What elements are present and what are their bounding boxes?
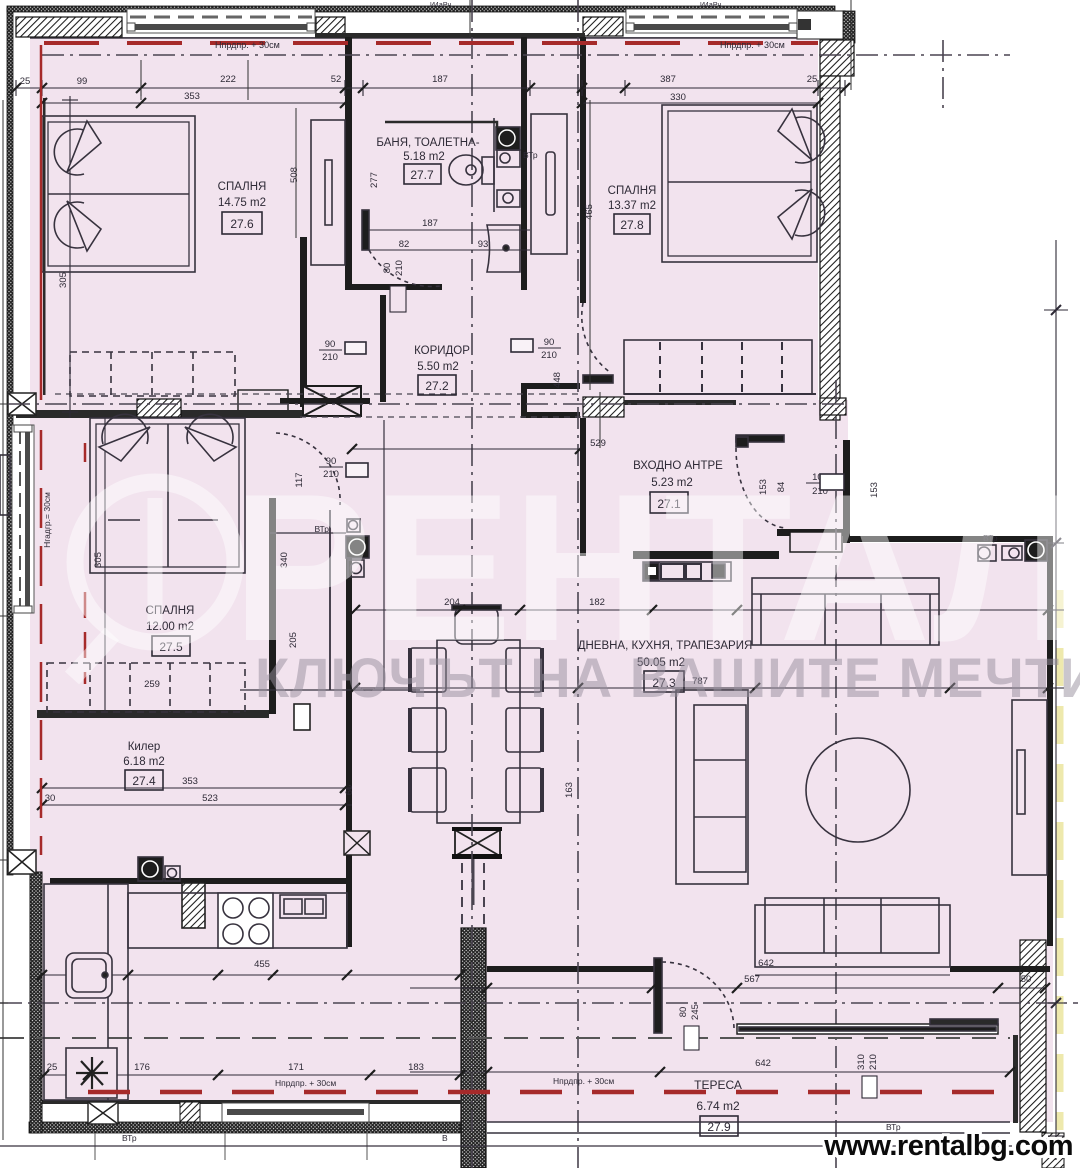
svg-text:50: 50 — [1021, 974, 1032, 985]
svg-text:ВТр: ВТр — [122, 1133, 137, 1143]
svg-text:529: 529 — [590, 438, 606, 449]
svg-text:www.rentalbg.com: www.rentalbg.com — [823, 1130, 1073, 1162]
svg-text:80: 80 — [678, 1007, 689, 1018]
svg-text:5.50 m2: 5.50 m2 — [417, 361, 459, 373]
svg-text:6.18 m2: 6.18 m2 — [123, 756, 165, 768]
svg-text:90: 90 — [544, 337, 555, 348]
svg-text:187: 187 — [432, 74, 448, 85]
svg-text:176: 176 — [134, 1062, 150, 1073]
svg-text:523: 523 — [202, 793, 218, 804]
svg-text:25: 25 — [807, 74, 818, 85]
svg-text:448: 448 — [552, 372, 563, 388]
svg-text:13.37 m2: 13.37 m2 — [608, 200, 656, 212]
svg-text:30: 30 — [45, 793, 56, 804]
svg-text:52: 52 — [331, 74, 342, 85]
svg-text:Килер: Килер — [128, 741, 161, 753]
svg-text:387: 387 — [660, 74, 676, 85]
svg-text:310: 310 — [856, 1054, 867, 1070]
svg-text:353: 353 — [182, 776, 198, 787]
svg-text:210: 210 — [394, 260, 405, 276]
svg-text:210: 210 — [322, 352, 338, 363]
svg-text:187: 187 — [422, 218, 438, 229]
svg-text:163: 163 — [564, 782, 575, 798]
svg-text:305: 305 — [93, 552, 104, 568]
svg-text:КЛЮЧЪТ НА ВАШИТЕ МЕЧТИ: КЛЮЧЪТ НА ВАШИТЕ МЕЧТИ — [255, 646, 1080, 709]
svg-text:14.75 m2: 14.75 m2 — [218, 197, 266, 209]
svg-text:210: 210 — [868, 1054, 879, 1070]
svg-text:Нпрдпр. + 30см: Нпрдпр. + 30см — [215, 40, 280, 50]
svg-text:259: 259 — [144, 679, 160, 690]
svg-text:В: В — [442, 1133, 448, 1143]
svg-text:508: 508 — [289, 167, 300, 183]
svg-text:330: 330 — [670, 92, 686, 103]
svg-text:222: 222 — [220, 74, 236, 85]
svg-text:27.6: 27.6 — [230, 217, 254, 231]
svg-text:455: 455 — [254, 959, 270, 970]
svg-text:БАНЯ, ТОАЛЕТНА-: БАНЯ, ТОАЛЕТНА- — [376, 137, 479, 149]
svg-text:277: 277 — [369, 172, 380, 188]
svg-text:642: 642 — [755, 1058, 771, 1069]
svg-text:245: 245 — [690, 1004, 701, 1020]
svg-text:99: 99 — [77, 76, 88, 87]
svg-text:КОРИДОР: КОРИДОР — [414, 345, 470, 357]
svg-text:27.4: 27.4 — [132, 774, 156, 788]
svg-text:567: 567 — [744, 974, 760, 985]
svg-text:27.8: 27.8 — [620, 218, 644, 232]
svg-text:82: 82 — [399, 239, 410, 250]
svg-text:СПАЛНЯ: СПАЛНЯ — [218, 181, 267, 193]
svg-text:5.18 m2: 5.18 m2 — [403, 151, 445, 163]
svg-text:27.7: 27.7 — [410, 168, 434, 182]
svg-text:Нгадгр.= 30см: Нгадгр.= 30см — [42, 492, 52, 548]
svg-text:93: 93 — [478, 239, 489, 250]
svg-text:И4аРч: И4аРч — [700, 2, 721, 9]
svg-text:27.2: 27.2 — [425, 379, 449, 393]
svg-text:И4аРч: И4аРч — [430, 2, 451, 9]
svg-text:305: 305 — [58, 272, 69, 288]
svg-text:171: 171 — [288, 1062, 304, 1073]
svg-text:6.74 m2: 6.74 m2 — [696, 1099, 740, 1113]
svg-text:183: 183 — [408, 1062, 424, 1073]
svg-text:90: 90 — [325, 339, 336, 350]
svg-text:210: 210 — [541, 350, 557, 361]
svg-text:Нпрдпр. + 30см: Нпрдпр. + 30см — [553, 1076, 614, 1086]
svg-text:353: 353 — [184, 91, 200, 102]
svg-text:25: 25 — [20, 76, 31, 87]
svg-text:СПАЛНЯ: СПАЛНЯ — [608, 185, 657, 197]
svg-text:Нпрдпр. + 30см: Нпрдпр. + 30см — [720, 40, 785, 50]
svg-text:Нпрдпр. + 30см: Нпрдпр. + 30см — [275, 1078, 336, 1088]
svg-text:80: 80 — [382, 263, 393, 274]
